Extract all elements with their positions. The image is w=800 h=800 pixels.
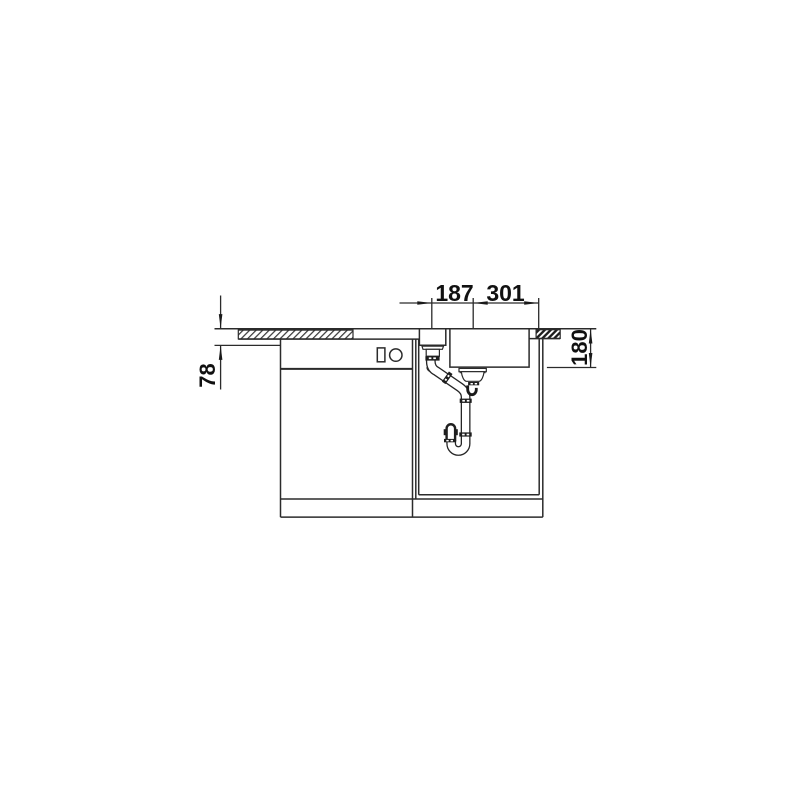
svg-text:301: 301 <box>486 280 525 306</box>
svg-text:187: 187 <box>435 280 473 306</box>
svg-text:180: 180 <box>567 329 592 366</box>
svg-text:78: 78 <box>195 363 220 387</box>
